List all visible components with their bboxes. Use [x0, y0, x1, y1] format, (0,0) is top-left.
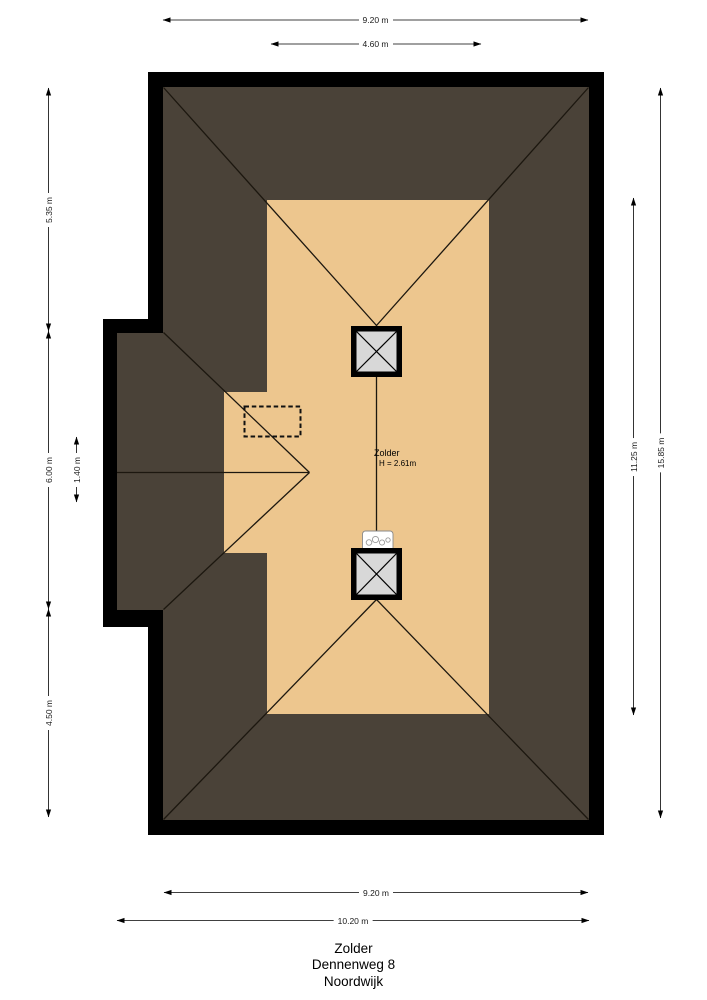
- dim-label-top-inner-width: 4.60 m: [359, 39, 393, 49]
- title-room: Zolder: [0, 941, 707, 957]
- dim-label-left-bottom: 4.50 m: [44, 696, 54, 730]
- dormer-roof-surface: [117, 333, 164, 610]
- room-name-label: Zolder: [374, 448, 400, 458]
- title-block: Zolder Dennenweg 8 Noordwijk: [0, 941, 707, 990]
- dim-label-left-middle: 6.00 m: [44, 453, 54, 487]
- title-city: Noordwijk: [0, 974, 707, 990]
- dim-label-bottom-width: 9.20 m: [359, 888, 393, 898]
- floorplan-canvas: 9.20 m 4.60 m 5.35 m 6.00 m 1.40 m 4.50 …: [0, 0, 707, 1000]
- title-address: Dennenweg 8: [0, 957, 707, 973]
- chimney-bottom: [351, 548, 402, 600]
- dim-label-right-inner: 11.25 m: [629, 437, 639, 475]
- dim-label-left-small: 1.40 m: [72, 453, 82, 487]
- chimney-top: [351, 326, 402, 377]
- dim-label-bottom-total-width: 10.20 m: [334, 916, 373, 926]
- dim-label-top-width: 9.20 m: [359, 15, 393, 25]
- dim-label-right-total: 15.85 m: [656, 434, 666, 473]
- room-height-label: H = 2.61m: [379, 459, 416, 468]
- dim-label-left-top: 5.35 m: [44, 193, 54, 227]
- floorplan-drawing: [0, 0, 707, 1000]
